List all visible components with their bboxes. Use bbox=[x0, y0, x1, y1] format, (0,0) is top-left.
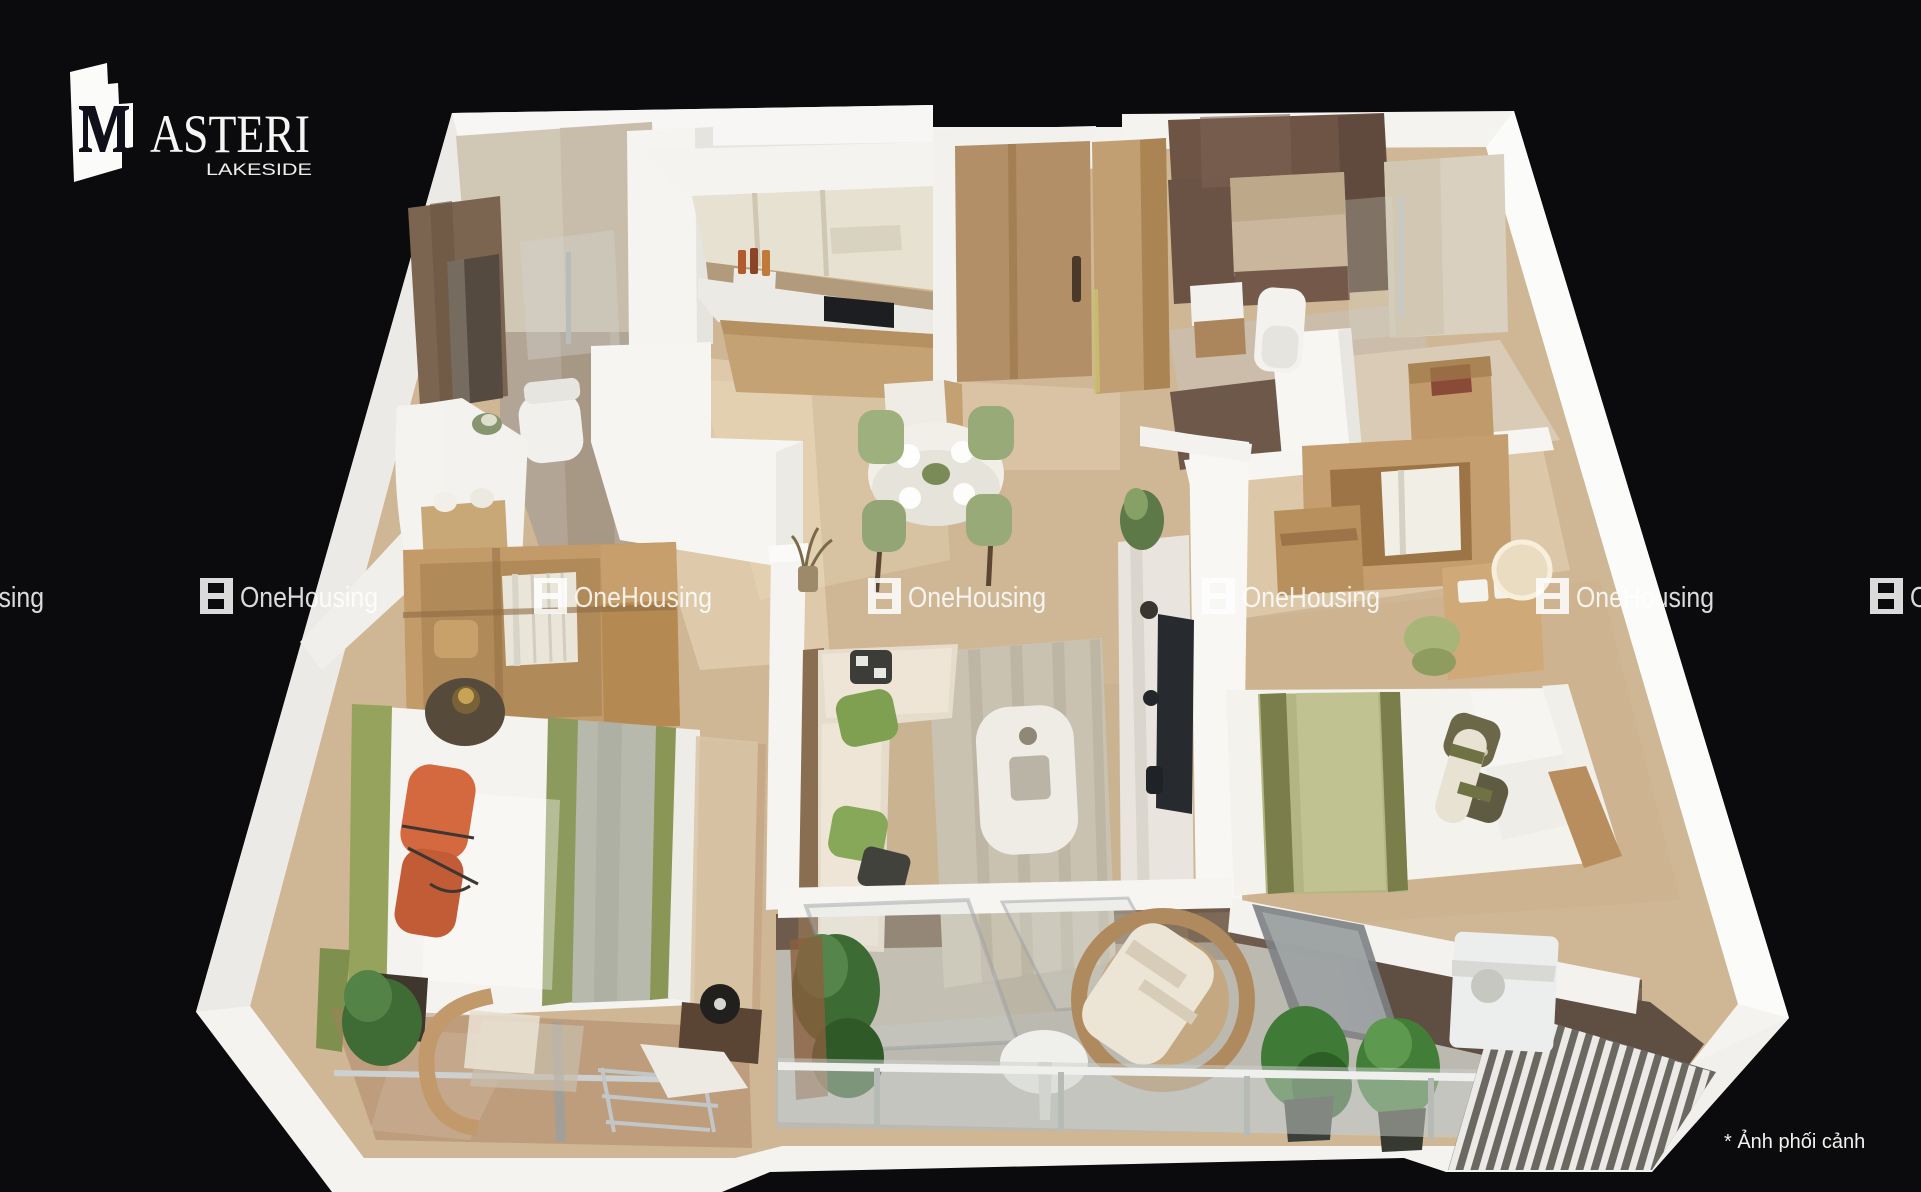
svg-text:OneHousing: OneHousing bbox=[1576, 582, 1714, 614]
svg-text:OneHousing: OneHousing bbox=[908, 582, 1046, 614]
svg-text:OneHousing: OneHousing bbox=[574, 582, 712, 614]
svg-text:OneHousing: OneHousing bbox=[240, 582, 378, 614]
svg-text:OneHousing: OneHousing bbox=[1242, 582, 1380, 614]
svg-text:OneHousing: OneHousing bbox=[1910, 582, 1921, 614]
svg-text:ASTERI: ASTERI bbox=[150, 104, 310, 164]
svg-text:* Ảnh phối cảnh: * Ảnh phối cảnh bbox=[1724, 1130, 1865, 1153]
svg-text:LAKESIDE: LAKESIDE bbox=[206, 160, 312, 179]
svg-text:OneHousing: OneHousing bbox=[0, 582, 44, 614]
